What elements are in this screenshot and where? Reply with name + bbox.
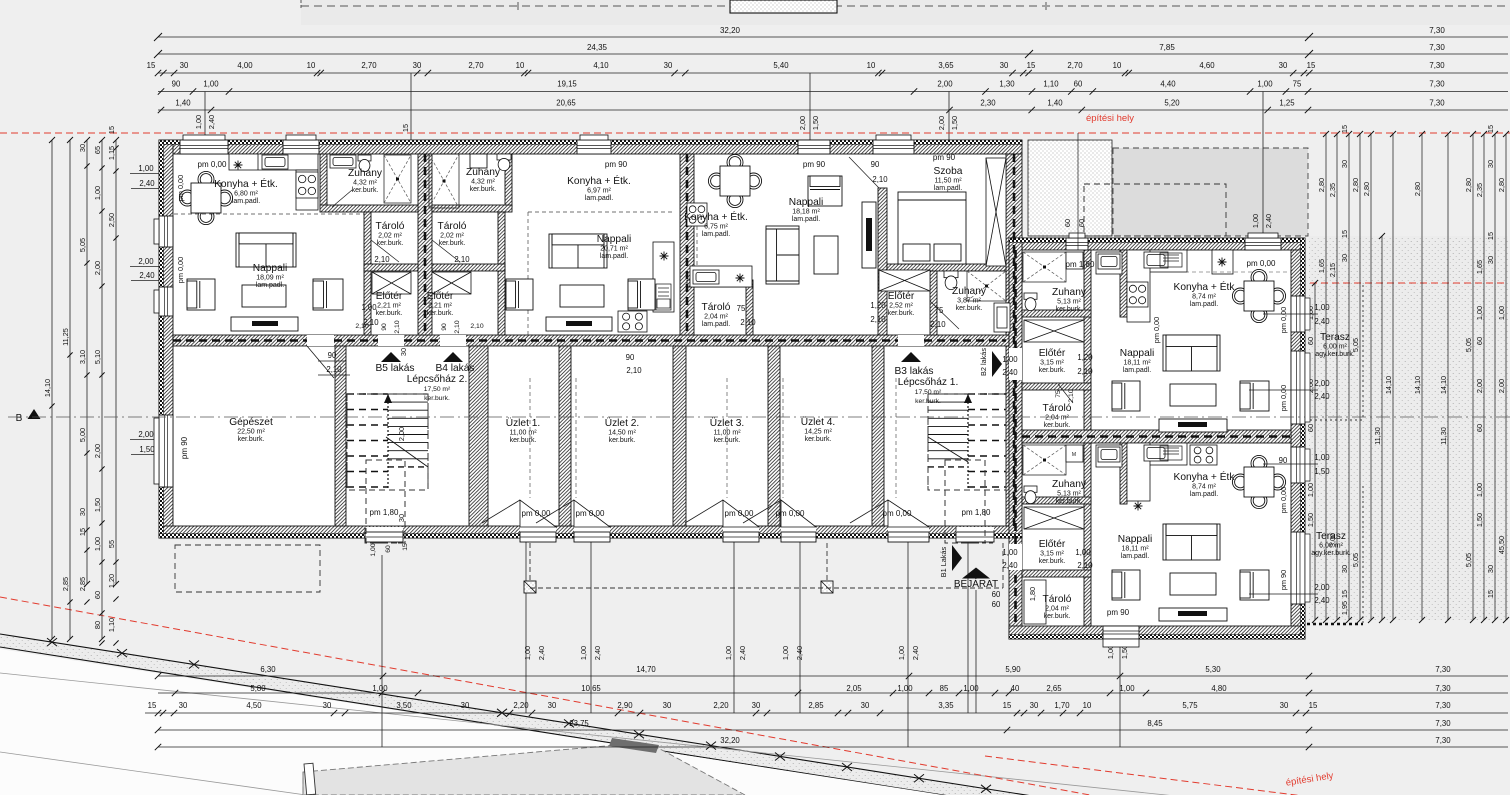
svg-text:6,30: 6,30 (260, 665, 276, 674)
svg-text:Szoba: Szoba (934, 166, 963, 177)
svg-text:2,65: 2,65 (1046, 684, 1062, 693)
svg-text:1,00: 1,00 (897, 646, 906, 660)
svg-text:7,30: 7,30 (1429, 61, 1445, 70)
svg-text:Konyha + Étk.: Konyha + Étk. (214, 177, 278, 190)
svg-text:BEJÁRAT: BEJÁRAT (954, 577, 998, 590)
svg-text:1,40: 1,40 (1047, 99, 1063, 108)
svg-text:1,15: 1,15 (107, 146, 116, 160)
svg-text:2,70: 2,70 (1067, 61, 1083, 70)
svg-text:60: 60 (1074, 80, 1083, 89)
svg-text:14,10: 14,10 (43, 379, 52, 397)
svg-text:18,11 m²: 18,11 m² (1123, 360, 1151, 367)
svg-text:B4 lakás: B4 lakás (435, 363, 474, 374)
svg-text:pm 90: pm 90 (933, 153, 956, 162)
svg-text:B3 lakás: B3 lakás (894, 366, 933, 377)
svg-text:2,10: 2,10 (872, 175, 888, 184)
svg-text:Üzlet 4.: Üzlet 4. (801, 416, 836, 428)
svg-text:2,40: 2,40 (1314, 392, 1330, 401)
svg-text:10: 10 (867, 61, 876, 70)
svg-text:55: 55 (107, 540, 116, 548)
svg-text:pm 0,00: pm 0,00 (576, 509, 605, 518)
svg-text:30: 30 (548, 701, 557, 710)
svg-text:15: 15 (78, 528, 87, 536)
svg-text:Előtér: Előtér (427, 291, 454, 302)
svg-text:agy.ker.burk.: agy.ker.burk. (1315, 351, 1355, 358)
svg-text:15: 15 (107, 126, 116, 134)
svg-text:30: 30 (664, 61, 673, 70)
svg-text:2,40: 2,40 (1002, 561, 1018, 570)
svg-text:2,04 m²: 2,04 m² (1045, 606, 1069, 613)
svg-text:B: B (16, 413, 23, 424)
svg-text:7,30: 7,30 (1429, 99, 1445, 108)
svg-text:1,50: 1,50 (811, 116, 820, 130)
svg-text:Konyha + Étk: Konyha + Étk (1174, 470, 1236, 483)
svg-text:2,70: 2,70 (468, 61, 484, 70)
svg-text:4,32 m²: 4,32 m² (353, 180, 377, 187)
svg-text:pm 90: pm 90 (1279, 570, 1288, 590)
svg-text:1,00: 1,00 (1002, 548, 1018, 557)
svg-text:2,80: 2,80 (1317, 178, 1326, 192)
svg-text:60: 60 (1306, 424, 1315, 432)
svg-text:Nappali: Nappali (1120, 348, 1155, 359)
svg-text:1,00: 1,00 (372, 684, 388, 693)
svg-text:5,00: 5,00 (78, 428, 87, 442)
svg-text:1,00: 1,00 (1314, 453, 1330, 462)
svg-text:15: 15 (1486, 590, 1495, 598)
svg-text:23,75: 23,75 (569, 719, 589, 728)
svg-text:ker.burk.: ker.burk. (1039, 367, 1066, 374)
svg-text:2,10: 2,10 (355, 323, 368, 330)
svg-text:5,20: 5,20 (1164, 99, 1180, 108)
svg-text:Lépcsőház 2.: Lépcsőház 2. (407, 374, 468, 385)
svg-text:30: 30 (461, 701, 470, 710)
svg-text:2,00: 2,00 (1314, 379, 1330, 388)
svg-text:1,00: 1,00 (361, 303, 377, 312)
svg-text:1,00: 1,00 (1497, 306, 1506, 320)
svg-text:2,00: 2,00 (1497, 379, 1506, 393)
svg-text:2,10: 2,10 (870, 315, 886, 324)
svg-text:85: 85 (940, 684, 949, 693)
svg-text:Nappali: Nappali (597, 234, 632, 245)
svg-text:ker.burk.: ker.burk. (510, 437, 537, 444)
svg-text:lam.padl.: lam.padl. (256, 282, 284, 289)
svg-text:Zuhany: Zuhany (1052, 287, 1087, 298)
svg-text:pm 0,00: pm 0,00 (1247, 259, 1276, 268)
svg-text:pm 90: pm 90 (803, 160, 826, 169)
svg-text:1,00: 1,00 (523, 646, 532, 660)
svg-text:2,00: 2,00 (93, 261, 102, 275)
svg-text:lam.padl.: lam.padl. (1123, 367, 1151, 374)
svg-text:2,02 m²: 2,02 m² (378, 233, 402, 240)
svg-text:lam.padl.: lam.padl. (600, 253, 628, 260)
svg-text:2,04 m²: 2,04 m² (1045, 415, 1069, 422)
svg-text:14,70: 14,70 (636, 665, 656, 674)
svg-text:2,85: 2,85 (78, 577, 87, 591)
svg-text:1,00: 1,00 (1306, 483, 1315, 497)
svg-text:pm 0,00: pm 0,00 (1279, 307, 1288, 333)
svg-text:90: 90 (871, 160, 880, 169)
svg-text:11,30: 11,30 (1439, 427, 1448, 445)
svg-text:lam.padl.: lam.padl. (934, 185, 962, 192)
svg-text:pm 0,00: pm 0,00 (1152, 317, 1161, 343)
svg-text:6,75 m²: 6,75 m² (704, 224, 728, 231)
svg-text:1,50: 1,50 (950, 116, 959, 130)
svg-text:2,85: 2,85 (808, 701, 824, 710)
svg-text:5,10: 5,10 (93, 350, 102, 364)
svg-text:1,70: 1,70 (1054, 701, 1070, 710)
svg-text:ker.burk.: ker.burk. (1056, 498, 1083, 505)
svg-text:24,35: 24,35 (587, 43, 608, 52)
svg-text:30: 30 (1340, 565, 1349, 573)
svg-text:90: 90 (172, 80, 181, 89)
svg-text:Lépcsőház 1.: Lépcsőház 1. (898, 377, 959, 388)
svg-text:6,00 m²: 6,00 m² (1323, 344, 1347, 351)
svg-text:15: 15 (147, 61, 156, 70)
svg-text:2,40: 2,40 (1002, 368, 1018, 377)
svg-text:15: 15 (1340, 230, 1349, 238)
svg-text:1,50: 1,50 (1306, 513, 1315, 527)
svg-text:5,40: 5,40 (773, 61, 789, 70)
svg-text:60: 60 (93, 591, 102, 599)
svg-text:2,21 m²: 2,21 m² (377, 303, 401, 310)
svg-text:8,74 m²: 8,74 m² (1192, 484, 1216, 491)
svg-text:90: 90 (441, 323, 448, 331)
svg-text:1,00: 1,00 (1251, 214, 1260, 228)
svg-text:18,18 m²: 18,18 m² (792, 209, 820, 216)
svg-text:pm 0,00: pm 0,00 (1279, 385, 1288, 411)
svg-text:20,65: 20,65 (556, 99, 576, 108)
svg-text:ker.burk.: ker.burk. (609, 437, 636, 444)
svg-text:75: 75 (1293, 80, 1302, 89)
svg-text:60: 60 (992, 600, 1001, 609)
svg-text:15: 15 (148, 701, 157, 710)
svg-text:1,20: 1,20 (1077, 353, 1093, 362)
svg-text:1,20: 1,20 (870, 301, 886, 310)
svg-text:14,10: 14,10 (1439, 376, 1448, 394)
svg-text:2,10: 2,10 (454, 320, 461, 333)
svg-text:60: 60 (1306, 337, 1315, 345)
svg-text:1,40: 1,40 (175, 99, 191, 108)
svg-text:30: 30 (399, 348, 408, 356)
svg-text:pm 0,00: pm 0,00 (776, 509, 805, 518)
svg-text:2,40: 2,40 (593, 646, 602, 660)
svg-text:30: 30 (180, 61, 189, 70)
svg-text:1,00: 1,00 (203, 80, 219, 89)
svg-text:2,10: 2,10 (470, 323, 483, 330)
svg-text:5,90: 5,90 (1005, 665, 1021, 674)
svg-text:45,50: 45,50 (1497, 536, 1506, 554)
svg-text:1,00: 1,00 (963, 684, 979, 693)
svg-text:Gépészet: Gépészet (229, 417, 273, 428)
svg-text:10: 10 (307, 61, 316, 70)
svg-text:8,45: 8,45 (1147, 719, 1163, 728)
svg-text:3,15 m²: 3,15 m² (1040, 551, 1064, 558)
svg-text:Terasz: Terasz (1316, 531, 1346, 542)
svg-text:14,10: 14,10 (1413, 376, 1422, 394)
svg-text:Terasz: Terasz (1320, 332, 1350, 343)
svg-text:2,40: 2,40 (139, 271, 155, 280)
svg-text:18,11 m²: 18,11 m² (1121, 546, 1149, 553)
svg-text:ker.burk.: ker.burk. (238, 436, 265, 443)
svg-text:2,00: 2,00 (397, 427, 406, 441)
svg-text:2,40: 2,40 (1314, 596, 1330, 605)
svg-text:ker.burk.: ker.burk. (1044, 422, 1071, 429)
svg-text:2,00: 2,00 (1475, 379, 1484, 393)
svg-text:Előtér: Előtér (1039, 348, 1066, 359)
svg-text:4,60: 4,60 (1199, 61, 1215, 70)
svg-text:80: 80 (93, 621, 102, 629)
svg-text:Tároló: Tároló (1043, 403, 1072, 414)
svg-text:6,97 m²: 6,97 m² (587, 188, 611, 195)
svg-text:ker.burk.: ker.burk. (377, 240, 404, 247)
svg-text:5,30: 5,30 (1205, 665, 1221, 674)
svg-text:7,30: 7,30 (1435, 665, 1451, 674)
svg-text:5,05: 5,05 (78, 238, 87, 252)
svg-text:pm 0,00: pm 0,00 (1279, 487, 1288, 513)
svg-text:1,20: 1,20 (107, 574, 116, 588)
svg-text:Előtér: Előtér (888, 291, 915, 302)
svg-text:B2 lakás: B2 lakás (979, 348, 988, 376)
svg-text:15: 15 (1340, 590, 1349, 598)
svg-text:pm 90: pm 90 (180, 436, 189, 459)
svg-text:30: 30 (1279, 61, 1288, 70)
svg-text:30: 30 (78, 508, 87, 516)
svg-text:1,00: 1,00 (1075, 548, 1091, 557)
svg-text:7,30: 7,30 (1435, 684, 1451, 693)
svg-text:3,65: 3,65 (938, 61, 954, 70)
svg-text:11,50 m²: 11,50 m² (934, 178, 962, 185)
svg-text:30: 30 (179, 701, 188, 710)
svg-text:lam.padl.: lam.padl. (585, 195, 613, 202)
svg-text:2,20: 2,20 (713, 701, 729, 710)
svg-text:pm 0,00: pm 0,00 (198, 160, 227, 169)
svg-text:2,40: 2,40 (738, 646, 747, 660)
svg-text:5,05: 5,05 (1464, 553, 1473, 567)
svg-text:32,20: 32,20 (720, 736, 740, 745)
svg-text:1,65: 1,65 (1317, 259, 1326, 273)
svg-text:Konyha + Étk.: Konyha + Étk. (684, 210, 748, 223)
svg-text:15: 15 (1486, 232, 1495, 240)
svg-text:pm 90: pm 90 (605, 160, 628, 169)
svg-text:2,40: 2,40 (1314, 317, 1330, 326)
svg-text:2,15: 2,15 (1328, 263, 1337, 277)
svg-text:2,80: 2,80 (1351, 178, 1360, 192)
svg-text:Előtér: Előtér (376, 291, 403, 302)
svg-text:5,05: 5,05 (1464, 338, 1473, 352)
svg-text:2,00: 2,00 (937, 80, 953, 89)
svg-text:2,10: 2,10 (626, 366, 642, 375)
svg-text:1,50: 1,50 (93, 498, 102, 512)
svg-text:30: 30 (413, 61, 422, 70)
svg-text:2,30: 2,30 (980, 99, 996, 108)
svg-text:7,30: 7,30 (1435, 701, 1451, 710)
svg-text:60: 60 (1475, 337, 1484, 345)
svg-text:lam.padl.: lam.padl. (702, 231, 730, 238)
svg-text:60: 60 (1475, 424, 1484, 432)
svg-text:pm 1,80: pm 1,80 (1066, 260, 1095, 269)
svg-text:1,50: 1,50 (1475, 513, 1484, 527)
svg-text:pm 0,00: pm 0,00 (176, 257, 185, 283)
svg-text:4,10: 4,10 (593, 61, 609, 70)
svg-text:40: 40 (1011, 684, 1020, 693)
svg-text:1,10: 1,10 (1043, 80, 1059, 89)
svg-text:lam.padl.: lam.padl. (702, 321, 730, 328)
svg-text:Üzlet 1.: Üzlet 1. (506, 417, 541, 429)
svg-text:17,50 m²: 17,50 m² (424, 386, 451, 393)
svg-text:7,30: 7,30 (1435, 736, 1451, 745)
svg-text:1,00: 1,00 (1257, 80, 1273, 89)
svg-text:3,35: 3,35 (938, 701, 954, 710)
svg-text:30: 30 (663, 701, 672, 710)
svg-text:22,50 m²: 22,50 m² (237, 429, 265, 436)
svg-text:2,00: 2,00 (138, 430, 154, 439)
svg-text:6,80 m²: 6,80 m² (234, 191, 258, 198)
svg-text:4,00: 4,00 (237, 61, 253, 70)
svg-text:1,00: 1,00 (724, 646, 733, 660)
svg-text:2,80: 2,80 (1464, 178, 1473, 192)
svg-text:2,80: 2,80 (1497, 178, 1506, 192)
svg-text:2,85: 2,85 (61, 577, 70, 591)
svg-text:11,00 m²: 11,00 m² (509, 430, 537, 437)
svg-text:ker.burk.: ker.burk. (470, 186, 497, 193)
svg-text:90: 90 (381, 323, 388, 331)
svg-text:75: 75 (935, 306, 944, 315)
svg-text:15: 15 (1003, 701, 1012, 710)
svg-text:1,80: 1,80 (1028, 587, 1037, 601)
svg-text:1,00: 1,00 (370, 543, 377, 556)
svg-text:Üzlet 2.: Üzlet 2. (605, 417, 640, 429)
svg-text:2,04 m²: 2,04 m² (704, 314, 728, 321)
svg-text:2,00: 2,00 (1314, 583, 1330, 592)
svg-text:1,00: 1,00 (897, 684, 913, 693)
svg-text:7,85: 7,85 (1159, 43, 1175, 52)
svg-text:építési hely: építési hely (1086, 113, 1134, 124)
svg-text:pm 1,80: pm 1,80 (370, 508, 399, 517)
svg-text:1,00: 1,00 (194, 115, 203, 129)
svg-text:5,13 m²: 5,13 m² (1057, 491, 1081, 498)
svg-text:pm 0,00: pm 0,00 (176, 175, 185, 201)
svg-text:Tároló: Tároló (376, 221, 405, 232)
svg-text:2,40: 2,40 (911, 646, 920, 660)
svg-text:ker.burk.: ker.burk. (805, 436, 832, 443)
svg-text:1,00: 1,00 (93, 537, 102, 551)
svg-text:6,00 m²: 6,00 m² (1319, 543, 1343, 550)
svg-text:ker.burk.: ker.burk. (888, 310, 915, 317)
svg-text:ker.burk.: ker.burk. (352, 187, 379, 194)
svg-text:2,70: 2,70 (361, 61, 377, 70)
svg-text:7,30: 7,30 (1429, 80, 1445, 89)
svg-text:65: 65 (93, 146, 102, 154)
svg-text:2,40: 2,40 (139, 179, 155, 188)
svg-text:Zuhany: Zuhany (466, 167, 501, 178)
svg-text:15: 15 (401, 124, 410, 132)
svg-text:Nappali: Nappali (1118, 534, 1153, 545)
svg-text:1,50: 1,50 (139, 445, 155, 454)
svg-text:lam.padl.: lam.padl. (1190, 491, 1218, 498)
svg-text:30: 30 (1030, 701, 1039, 710)
svg-text:19,15: 19,15 (557, 80, 577, 89)
svg-text:lam.padl.: lam.padl. (1121, 553, 1149, 560)
svg-text:30: 30 (1280, 701, 1289, 710)
svg-text:2,00: 2,00 (798, 116, 807, 130)
svg-text:lam.padl.: lam.padl. (1190, 301, 1218, 308)
svg-text:30: 30 (752, 701, 761, 710)
svg-text:1,00: 1,00 (93, 186, 102, 200)
svg-text:2,10: 2,10 (1077, 561, 1093, 570)
svg-text:B1 Lakás: B1 Lakás (939, 546, 948, 577)
svg-text:Konyha + Étk.: Konyha + Étk. (567, 174, 631, 187)
svg-text:3,87 m²: 3,87 m² (957, 298, 981, 305)
svg-text:2,10: 2,10 (374, 255, 390, 264)
svg-text:8,74 m²: 8,74 m² (1192, 294, 1216, 301)
svg-text:1,00: 1,00 (1002, 355, 1018, 364)
svg-text:2,52 m²: 2,52 m² (889, 303, 913, 310)
svg-text:ker.burk.: ker.burk. (1056, 306, 1083, 313)
svg-text:2,10: 2,10 (1077, 367, 1093, 376)
svg-text:17,50 m²: 17,50 m² (915, 389, 942, 396)
svg-text:ker.burk.: ker.burk. (427, 310, 454, 317)
svg-text:14,50 m²: 14,50 m² (608, 430, 636, 437)
svg-text:2,00: 2,00 (93, 444, 102, 458)
svg-text:4,32 m²: 4,32 m² (471, 179, 495, 186)
svg-text:Zuhany: Zuhany (1052, 479, 1087, 490)
svg-text:Konyha + Étk: Konyha + Étk (1174, 280, 1236, 293)
svg-text:4,80: 4,80 (1211, 684, 1227, 693)
svg-text:2,80: 2,80 (1362, 182, 1371, 196)
svg-text:5,80: 5,80 (250, 684, 266, 693)
svg-text:15: 15 (1307, 61, 1316, 70)
svg-text:30: 30 (1486, 256, 1495, 264)
svg-text:2,10: 2,10 (326, 365, 342, 374)
svg-text:pm 0,00: pm 0,00 (725, 509, 754, 518)
svg-text:2,40: 2,40 (1264, 214, 1273, 228)
svg-text:10: 10 (516, 61, 525, 70)
svg-text:10: 10 (1083, 701, 1092, 710)
svg-text:2,10: 2,10 (394, 320, 401, 333)
svg-text:15: 15 (1486, 125, 1495, 133)
svg-text:Nappali: Nappali (253, 263, 288, 274)
svg-text:7,30: 7,30 (1429, 43, 1445, 52)
svg-text:lam.padl.: lam.padl. (792, 216, 820, 223)
svg-text:15: 15 (1340, 125, 1349, 133)
svg-text:3,10: 3,10 (78, 350, 87, 364)
svg-text:30: 30 (861, 701, 870, 710)
svg-text:1,00: 1,00 (579, 646, 588, 660)
svg-text:60: 60 (1063, 219, 1072, 227)
svg-text:1,50: 1,50 (1314, 467, 1330, 476)
svg-text:pm 0,00: pm 0,00 (522, 509, 551, 518)
svg-text:2,35: 2,35 (1475, 183, 1484, 197)
svg-text:1,00: 1,00 (1475, 483, 1484, 497)
svg-text:1,65: 1,65 (1475, 260, 1484, 274)
svg-text:18,09 m²: 18,09 m² (256, 275, 284, 282)
svg-text:30: 30 (1486, 160, 1495, 168)
svg-text:4,40: 4,40 (1160, 80, 1176, 89)
svg-text:2,02 m²: 2,02 m² (440, 233, 464, 240)
svg-text:90: 90 (328, 351, 337, 360)
svg-text:20,71 m²: 20,71 m² (600, 246, 628, 253)
svg-text:10: 10 (1113, 61, 1122, 70)
svg-text:5,05: 5,05 (1351, 553, 1360, 567)
svg-text:14,25 m²: 14,25 m² (804, 429, 832, 436)
svg-text:Előtér: Előtér (1039, 539, 1066, 550)
svg-text:ker.burk.: ker.burk. (376, 310, 403, 317)
svg-text:ker.burk.: ker.burk. (424, 395, 450, 402)
svg-text:2,50: 2,50 (107, 213, 116, 227)
svg-text:7,30: 7,30 (1429, 26, 1445, 35)
svg-text:15: 15 (1027, 61, 1036, 70)
svg-text:3,15 m²: 3,15 m² (1040, 360, 1064, 367)
